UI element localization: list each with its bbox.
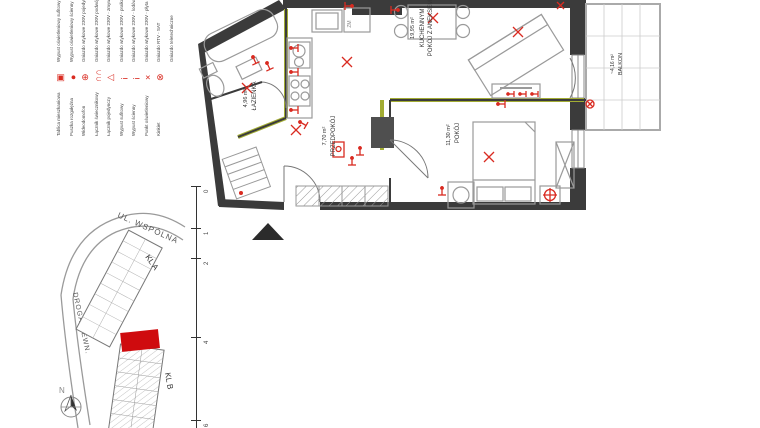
room-pokoj-area: 11,30 m² <box>446 124 452 145</box>
legend-symbol-panel-icon: ▣ <box>56 73 65 82</box>
scale-tick-0: 0 <box>204 190 210 193</box>
scale-tick-1: 1 <box>204 232 210 235</box>
legend-symbol-switch2-icon: ∩∩ <box>94 69 103 82</box>
drawing-sheet: Wypust oświetleniowy sufitowy Wypust ośw… <box>0 0 760 428</box>
legend-label: Wypust sufitowy <box>120 104 125 136</box>
building-wing-a <box>76 230 162 347</box>
north-arrow-icon: N <box>59 386 81 417</box>
legend-label: Tablica mieszkaniowa <box>57 92 62 136</box>
legend-note: Gniazdo wtykowe 230V - płyta kuchenna <box>145 0 150 62</box>
room-przedpokoj-area: 7,70 m² <box>322 127 328 146</box>
lamp-icon <box>543 188 557 202</box>
legend-note: Gniazdo teletechniczne <box>170 15 175 62</box>
legend-symbol-outlet1-icon: ¡ <box>119 77 128 80</box>
room-pokoj-name: POKÓJ <box>454 123 461 143</box>
legend-label: Łącznik świecznikowy <box>95 92 100 136</box>
hall-wardrobe <box>296 186 388 206</box>
legend-note: Gniazdo wtykowe 230V - lodówka <box>132 0 137 62</box>
legend-note: Gniazdo RTV - SAT <box>157 23 162 62</box>
legend-note: Gniazdo wtykowe 230V - zmywarka <box>107 0 112 62</box>
light-x-icon <box>242 2 564 162</box>
legend-label: Punkt oświetleniowy <box>145 95 150 136</box>
room-lazienka-area: 4,96 m² <box>243 89 249 108</box>
legend-label: Wypust ścienny <box>132 105 137 136</box>
legend-symbol-intercom-icon: ⊕ <box>81 73 90 81</box>
scale-tick-4: 4 <box>204 341 210 344</box>
legend-note: Wypust oświetleniowy sufitowy <box>57 1 62 62</box>
north-label: N <box>59 386 65 395</box>
room-aneks-name: POKÓJ Z ANEKSEM <box>427 0 434 56</box>
legend-label: Puszka rozgałęźna <box>70 98 75 136</box>
legend-note: Wypust oświetleniowy ścienny <box>70 2 75 62</box>
legend-symbol-switch1-icon: △ <box>106 74 115 81</box>
room-aneks-name2: KUCHENNYM <box>420 9 426 48</box>
floorplan-svg: 4,96 m² ŁAZIENKA 19,95 m² KUCHENNYM POKÓ… <box>190 0 680 250</box>
room-balkon-area: ~4,16 m² <box>610 54 616 74</box>
room-labels: 4,96 m² ŁAZIENKA 19,95 m² KUCHENNYM POKÓ… <box>243 0 624 156</box>
legend-note: Gniazdo wtykowe 230V pojedyncze <box>82 0 87 62</box>
legend-note: Gniazdo wtykowe 230V - pralka <box>120 0 125 62</box>
room-przedpokoj-name: PRZEDPOKÓJ <box>330 116 337 157</box>
room-aneks-area: 19,95 m² <box>410 17 416 39</box>
legend-symbol-lightpoint-icon: × <box>144 75 153 80</box>
staircase <box>222 147 270 199</box>
scale-tick-2: 2 <box>204 262 210 265</box>
legend-label: Kinkiet <box>157 122 162 136</box>
shaft <box>371 117 394 148</box>
entrance-marker-icon <box>252 223 284 240</box>
scale-tick-6: 6 <box>204 424 210 427</box>
legend-symbol-outlet2-icon: ¡ <box>131 77 140 80</box>
building-wing-b <box>108 344 164 428</box>
appliance-zm-label: ZM <box>347 20 353 27</box>
room-balkon-name: BALKON <box>618 53 624 75</box>
legend-note: Gniazdo wtykowe 230V podwójne <box>95 0 100 62</box>
stair-b-label: KL B <box>163 372 175 390</box>
legend-symbol-sconce-icon: ⊗ <box>156 73 165 81</box>
highlighted-unit[interactable] <box>120 329 160 352</box>
legend-symbol-box-icon: ● <box>69 75 78 80</box>
room-lazienka-name: ŁAZIENKA <box>252 81 258 110</box>
legend-label: Wideodomofon <box>82 106 87 136</box>
legend-label: Łącznik pojedynczy <box>107 97 112 136</box>
siteplan-svg: UL. WSPÓLNA DROGA WEWN. <box>57 195 187 428</box>
